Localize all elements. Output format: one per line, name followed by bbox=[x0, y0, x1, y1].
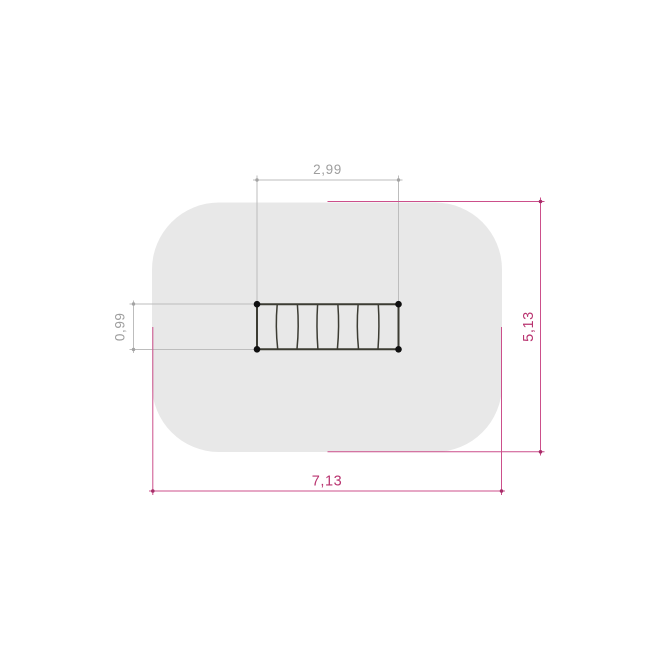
ladder-corner-dot bbox=[254, 346, 261, 353]
dim-label-equipment-depth: 0,99 bbox=[113, 312, 128, 341]
safety-zone-area bbox=[152, 203, 502, 453]
dim-end-dot bbox=[255, 178, 258, 181]
dim-label-zone-width: 7,13 bbox=[312, 474, 343, 490]
dim-end-dot bbox=[500, 489, 504, 493]
dim-end-dot bbox=[132, 348, 135, 351]
dim-end-dot bbox=[539, 450, 543, 454]
dim-end-dot bbox=[397, 178, 400, 181]
ladder-corner-dot bbox=[395, 346, 402, 353]
dim-end-dot bbox=[151, 489, 155, 493]
plan-drawing: 2,99 0,99 7,13 5,13 bbox=[0, 0, 660, 660]
dim-label-equipment-width: 2,99 bbox=[313, 162, 342, 177]
plan-drawing-svg: 2,99 0,99 7,13 5,13 bbox=[0, 0, 660, 660]
ladder-corner-dot bbox=[254, 301, 261, 308]
ladder-corner-dot bbox=[395, 301, 402, 308]
dim-end-dot bbox=[132, 302, 135, 305]
dim-end-dot bbox=[539, 200, 543, 204]
safety-zone bbox=[152, 203, 502, 453]
dim-label-zone-depth: 5,13 bbox=[521, 311, 537, 342]
